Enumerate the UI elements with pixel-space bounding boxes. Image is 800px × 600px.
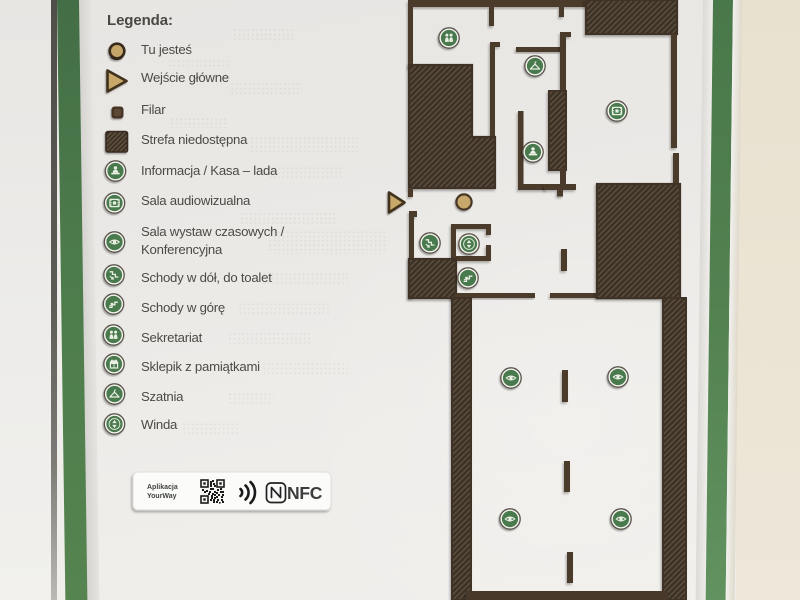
svg-text:Aplikacja: Aplikacja [147,484,178,491]
svg-text:NFC: NFC [287,483,323,503]
svg-text:YourWay: YourWay [147,493,177,500]
